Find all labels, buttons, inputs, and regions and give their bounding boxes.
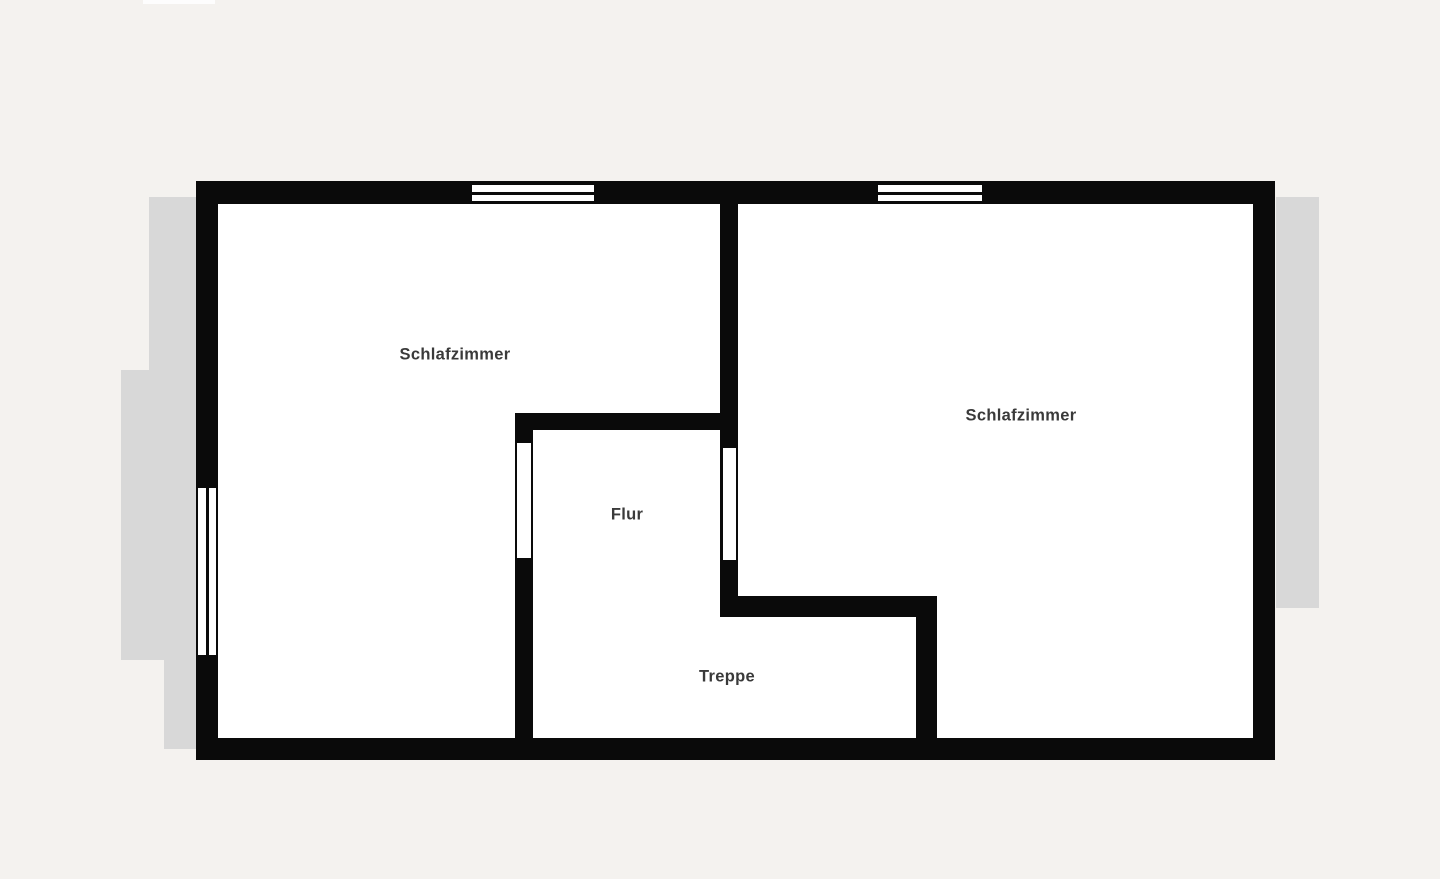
top-white-strip bbox=[143, 0, 215, 4]
top-window-left-divider bbox=[472, 192, 594, 195]
room-label-bedroom-left: Schlafzimmer bbox=[400, 346, 511, 365]
hallway-top-wall bbox=[515, 413, 738, 430]
roof-overhang-left-upper bbox=[149, 197, 196, 371]
hallway-right-opening bbox=[723, 448, 736, 560]
top-window-right-divider bbox=[878, 192, 982, 195]
right-wall bbox=[1253, 181, 1275, 760]
roof-overhang-right bbox=[1276, 197, 1319, 608]
roof-overhang-left-lower bbox=[164, 660, 196, 749]
room-label-hallway: Flur bbox=[611, 506, 643, 525]
top-wall bbox=[196, 181, 1275, 204]
room-label-stairs: Treppe bbox=[699, 668, 755, 687]
room-label-bedroom-right: Schlafzimmer bbox=[966, 407, 1077, 426]
roof-overhang-left-mid bbox=[121, 370, 196, 660]
floor-plan: Schlafzimmer Schlafzimmer Flur Treppe bbox=[0, 0, 1440, 879]
bottom-wall bbox=[196, 738, 1275, 760]
left-wall bbox=[196, 181, 218, 760]
left-window-divider bbox=[206, 488, 209, 655]
hallway-left-opening bbox=[517, 443, 531, 558]
stairs-right-wall bbox=[916, 596, 937, 757]
stairs-top-wall bbox=[720, 596, 937, 617]
